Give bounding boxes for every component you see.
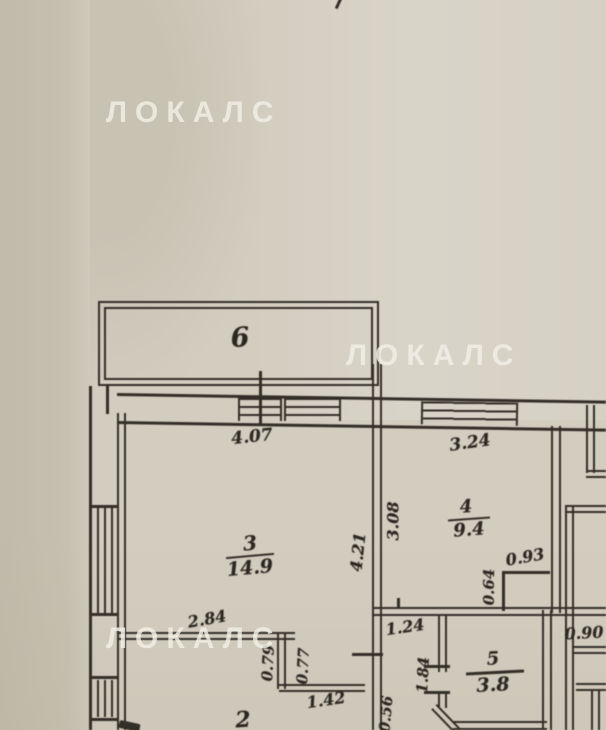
- room-2-number: 2: [234, 706, 251, 730]
- wall-closet-north: [502, 571, 550, 574]
- dimension-label-0-56: 0.56: [375, 695, 396, 730]
- wall-shaft-topright: [586, 405, 595, 473]
- window-west-glazing-1: [97, 508, 113, 615]
- room-3-area: 14.9: [226, 555, 274, 581]
- wall-room4-east: [551, 426, 561, 613]
- wall-north-bottom-line: [117, 421, 606, 431]
- dimension-label-3-08: 3.08: [384, 502, 403, 541]
- wall-room5-south: [453, 721, 547, 730]
- window-west-tick-3: [92, 676, 119, 679]
- bottom-edge-smudge: [118, 720, 140, 730]
- watermark: ЛОКАЛС: [346, 339, 521, 373]
- watermark: ЛОКАЛС: [106, 96, 281, 130]
- wall-north-top-line: [117, 393, 606, 403]
- wall-divider-tick: [352, 653, 383, 656]
- watermark: ЛОКАЛС: [106, 622, 281, 656]
- room-4-number: 4: [459, 496, 473, 518]
- dimension-label-4-07: 4.07: [230, 425, 273, 449]
- wall-right-room-mid: [574, 646, 606, 654]
- room-6-number: 6: [230, 322, 251, 354]
- dimension-label-0-93: 0.93: [504, 544, 546, 569]
- wall-balcony-connector: [106, 384, 109, 414]
- wall-right-room-west: [565, 505, 574, 730]
- wall-room4-south: [372, 607, 606, 616]
- dimension-label-0-77: 0.77: [293, 647, 313, 684]
- photo-edge-mark: [335, 0, 342, 9]
- dimension-label-3-24: 3.24: [448, 430, 492, 456]
- window-west-tick-2: [92, 613, 119, 616]
- wall-right-room-inner: [591, 689, 600, 730]
- window-west-glazing-2: [97, 680, 113, 717]
- dimension-label-1-42: 1.42: [305, 688, 346, 712]
- dimension-label-0-64: 0.64: [480, 569, 498, 606]
- room-5-number: 5: [486, 648, 500, 670]
- wall-closet-west: [502, 571, 505, 611]
- room-5-area: 3.8: [476, 673, 510, 697]
- wall-room5-west-upper: [438, 615, 447, 672]
- wall-shaft-topright-bottom: [586, 470, 606, 478]
- window-north-3: [421, 401, 518, 426]
- dimension-label-1-24: 1.24: [384, 615, 425, 639]
- window-north-divider-tick: [259, 371, 262, 426]
- wall-room5-east: [542, 610, 552, 730]
- floorplan-photo: 6 3 14.9 4 9.4 5 3.8 2 4.07 3.24 4.21 3.…: [0, 0, 606, 730]
- wall-west: [117, 413, 126, 730]
- window-west-tick-4: [92, 718, 119, 721]
- dimension-label-1-84: 1.84: [413, 656, 433, 693]
- room-4-area: 9.4: [453, 518, 486, 541]
- dimension-label-0-90: 0.90: [564, 622, 604, 643]
- wall-room4-south-tick: [397, 598, 400, 609]
- room-3-number: 3: [242, 530, 258, 555]
- dimension-label-4-21: 4.21: [347, 532, 370, 573]
- window-north-2: [284, 398, 341, 421]
- wall-room3-room4-divider: [372, 364, 382, 730]
